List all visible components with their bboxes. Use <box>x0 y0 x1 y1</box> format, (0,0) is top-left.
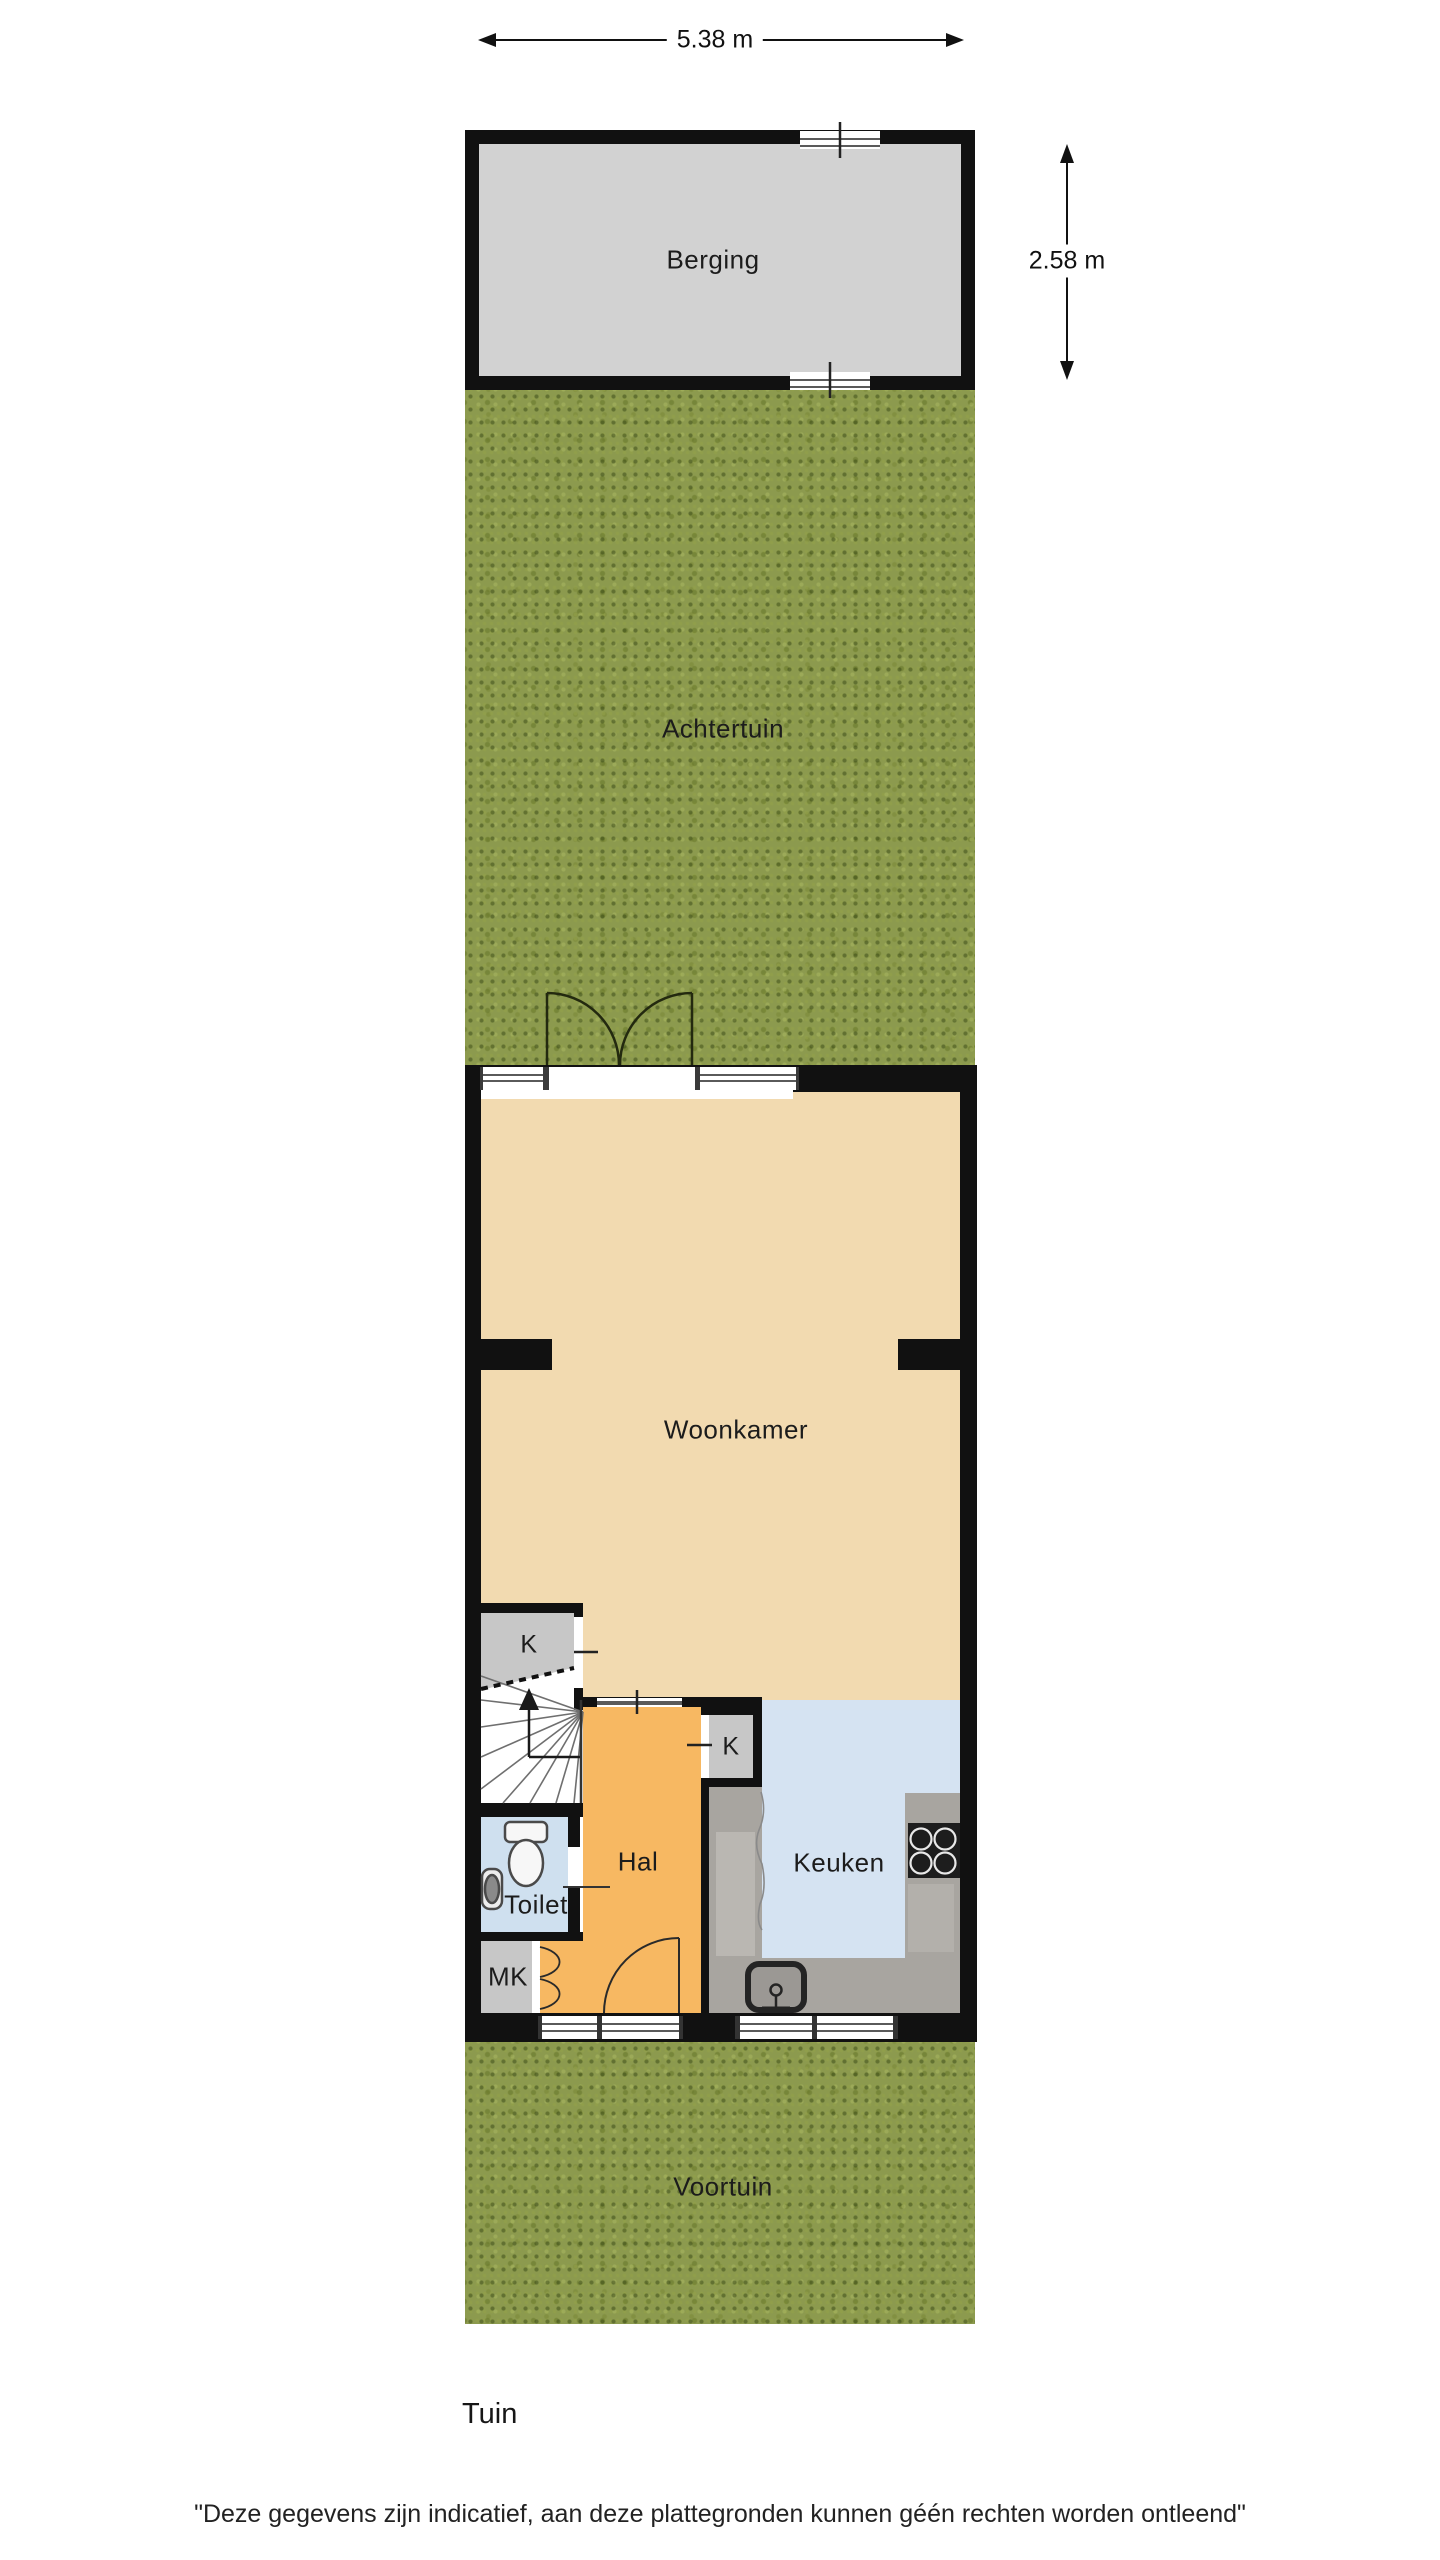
disclaimer-text: "Deze gegevens zijn indicatief, aan deze… <box>0 2500 1440 2529</box>
door-closet-kitchen <box>701 1715 709 1778</box>
door-meterkast <box>532 1944 540 2010</box>
kitchen-counter-right-panel <box>908 1884 954 1952</box>
door-toilet <box>568 1847 580 1888</box>
kitchen-counter-bottom <box>709 1958 960 2013</box>
door-woonkamer-stairs <box>574 1617 583 1688</box>
kitchen-window-post-left <box>735 2016 740 2039</box>
wall-stairs-bottom <box>465 1803 583 1817</box>
room-label-woonkamer: Woonkamer <box>664 1415 808 1446</box>
kitchen-window-post-mid <box>812 2016 817 2039</box>
window-garden-right <box>697 1067 799 1090</box>
front-door-opening <box>538 2016 683 2039</box>
garden-door-opening <box>546 1067 698 1090</box>
wall-closet-top <box>465 1603 583 1613</box>
wall-hal-keuken <box>701 1787 709 2013</box>
floorplan-canvas: Berging Achtertuin Woonkamer K K Hal Keu… <box>0 0 1440 2560</box>
wall-closet-kitchen-right <box>753 1703 762 1787</box>
room-label-berging: Berging <box>666 245 759 276</box>
front-door-post-mid <box>597 2016 602 2039</box>
wall-house-right <box>960 1065 977 2042</box>
kitchen-counter-left-panel <box>716 1832 755 1956</box>
wall-closet-kitchen-bottom <box>701 1778 762 1787</box>
front-door-post-left <box>538 2016 542 2039</box>
dimension-width-label: 5.38 m <box>667 24 763 57</box>
room-label-keuken: Keuken <box>793 1848 884 1879</box>
window-garden-left <box>480 1067 546 1090</box>
room-label-voortuin: Voortuin <box>673 2172 772 2203</box>
wall-stub-right <box>898 1339 977 1370</box>
door-woonkamer-hal <box>597 1698 682 1707</box>
berging-bottom-door <box>790 372 870 390</box>
room-label-closet-stairs: K <box>520 1631 537 1660</box>
front-door-post-right <box>679 2016 683 2039</box>
stove <box>908 1823 960 1878</box>
wall-stub-left <box>465 1339 552 1370</box>
dimension-height-label: 2.58 m <box>1023 245 1111 278</box>
room-label-achtertuin: Achtertuin <box>662 714 784 745</box>
top-facade-sill <box>481 1090 793 1099</box>
room-label-meterkast: MK <box>488 1962 528 1993</box>
hal-floor-entry <box>540 1941 583 2013</box>
section-caption: Tuin <box>462 2398 517 2431</box>
room-label-closet-kitchen: K <box>722 1733 739 1762</box>
room-label-toilet: Toilet <box>504 1890 568 1921</box>
kitchen-window-post-right <box>893 2016 898 2039</box>
berging-top-door <box>800 131 880 149</box>
wall-house-left <box>465 1065 481 2042</box>
wall-toilet-bottom <box>465 1932 583 1941</box>
room-label-hal: Hal <box>618 1847 659 1878</box>
